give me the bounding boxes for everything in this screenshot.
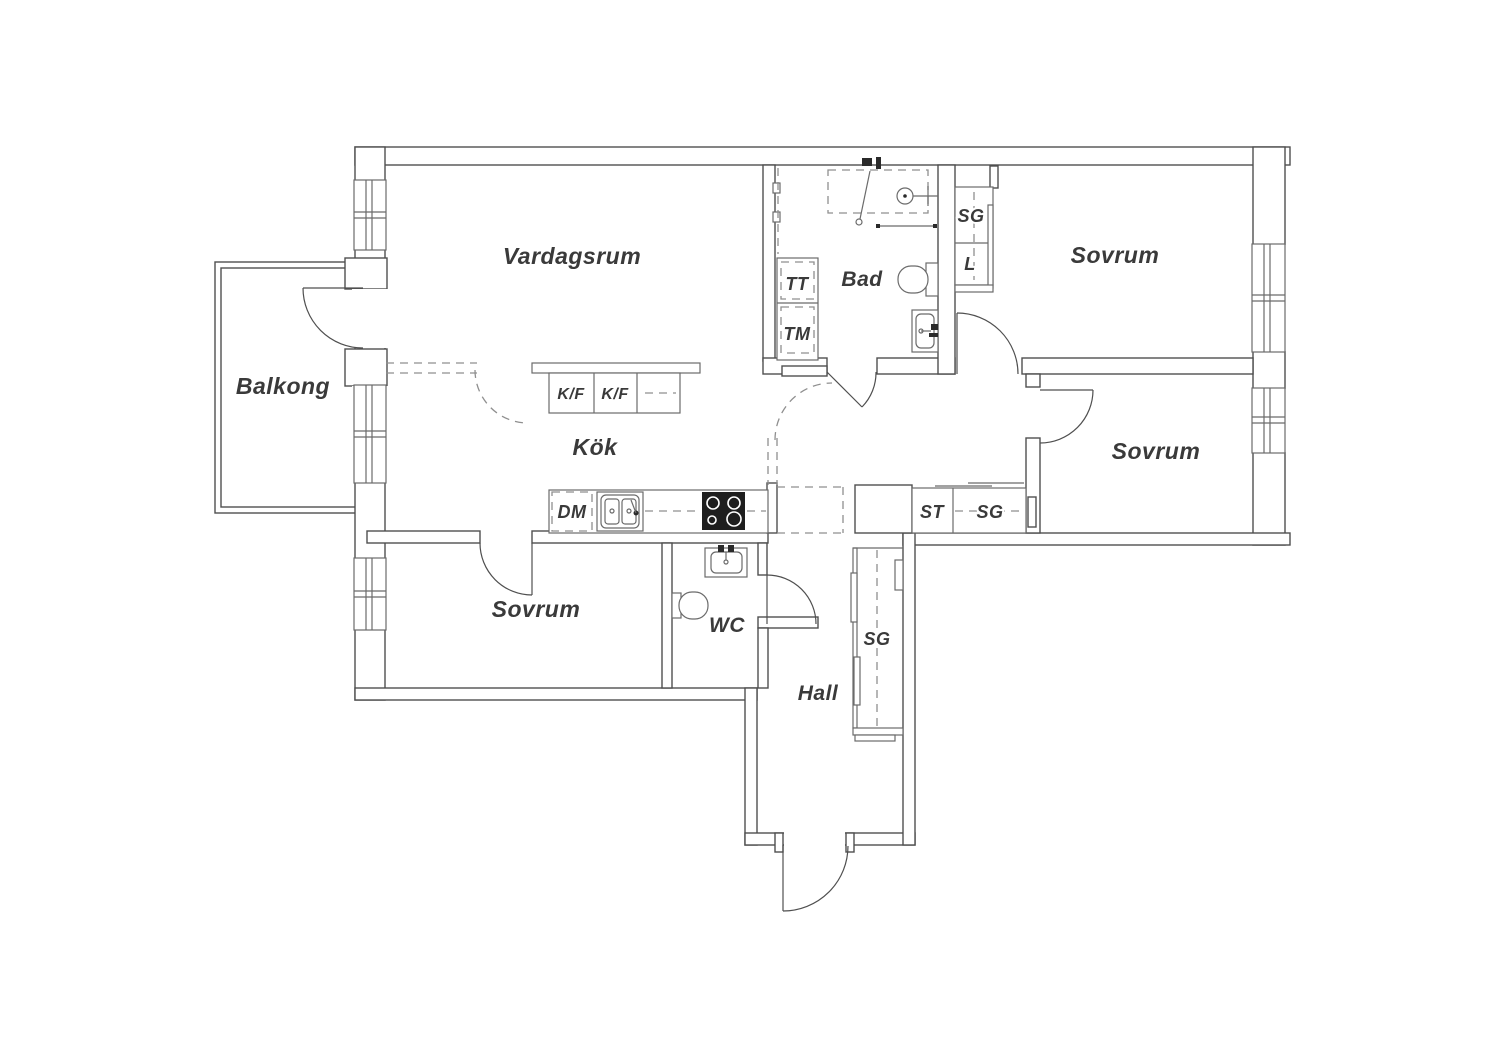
label-bad: Bad [841,268,883,291]
label-kf-left: K/F [557,386,585,403]
label-balkong: Balkong [236,373,330,399]
window-bedroom-top [1252,244,1285,352]
label-kf-right: K/F [601,386,629,403]
entrance-door [783,845,848,911]
sink-bathroom [912,310,938,352]
label-sg-bathroom: SG [957,206,984,226]
label-hall: Hall [798,682,839,705]
label-sg-corridor: SG [976,502,1003,522]
wall-openings [352,181,1287,847]
label-linen: L [964,254,976,274]
floor-plan-page: Vardagsrum Balkong Kök Sovrum Sovrum Sov… [0,0,1500,1060]
toilet-bathroom [898,263,938,296]
bedroom-mid-door [1040,390,1093,443]
floor-plan-drawing: Vardagsrum Balkong Kök Sovrum Sovrum Sov… [0,0,1500,1060]
shower [828,157,938,228]
label-sovrum-mid: Sovrum [1112,438,1201,464]
bathroom-door [827,372,876,407]
label-sovrum-top: Sovrum [1071,242,1160,268]
label-st: ST [920,502,946,522]
dashed-guides [386,168,1024,728]
label-sg-hall: SG [863,629,890,649]
window-livingroom [354,180,386,250]
stove [702,492,745,530]
label-vardagsrum: Vardagsrum [503,243,641,269]
label-kok: Kök [573,434,619,460]
window-kitchen [354,385,386,483]
window-bedroom-bottom [354,558,386,630]
toilet-wc [672,592,708,619]
label-dm: DM [558,502,587,522]
bedroom-top-door [957,313,1018,374]
bedroom-bottom-door [480,543,532,595]
label-tm: TM [784,324,811,344]
wc-fixtures [672,545,747,619]
label-wc: WC [709,614,745,637]
sink-wc [705,545,747,577]
label-tt: TT [786,274,810,294]
label-sovrum-bottom: Sovrum [492,596,581,622]
window-bedroom-mid [1252,388,1285,453]
kitchen-sink [597,492,643,531]
